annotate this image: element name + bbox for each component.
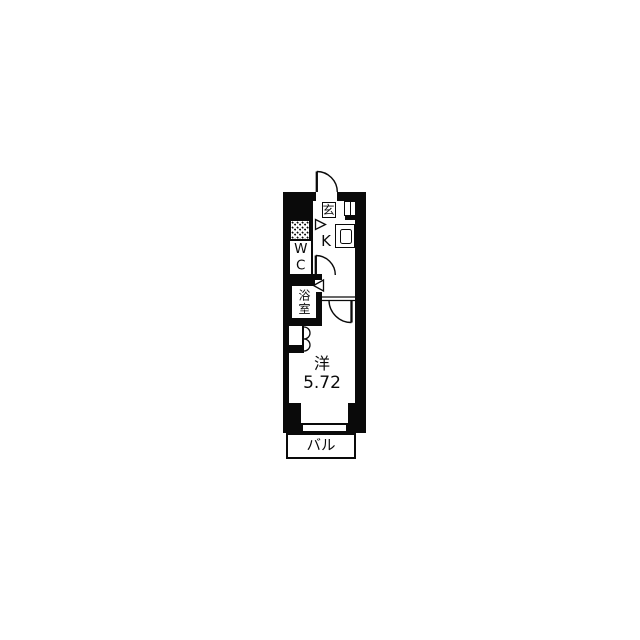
bathroom-label: 浴室 [292, 286, 316, 318]
hallway-floor [322, 274, 355, 297]
room-nook-floor [304, 326, 322, 353]
kitchen-label: K [316, 233, 336, 250]
toilet-label: WC [289, 240, 312, 275]
meter-box [344, 201, 356, 216]
main-room-label-group: 洋 5.72 [289, 352, 355, 396]
meter-box-divider [350, 202, 351, 215]
entrance-label: 玄 [322, 202, 336, 219]
entrance-door-swing-icon [317, 172, 338, 193]
floor-plan: 玄 K WC 浴室 洋 5.72 バル [0, 0, 640, 640]
main-room-label: 洋 [314, 356, 330, 372]
window [301, 423, 348, 434]
room-doorway-floor [322, 297, 355, 353]
main-room-lower-floor [301, 403, 348, 423]
kitchen-sink-icon [340, 229, 352, 244]
washing-machine-space [290, 220, 310, 240]
entrance-door-opening [316, 192, 337, 201]
balcony-label: バル [286, 433, 356, 459]
main-room-area: 5.72 [303, 375, 341, 392]
kitchen-sink-counter [335, 224, 356, 248]
closet-floor [289, 326, 302, 345]
